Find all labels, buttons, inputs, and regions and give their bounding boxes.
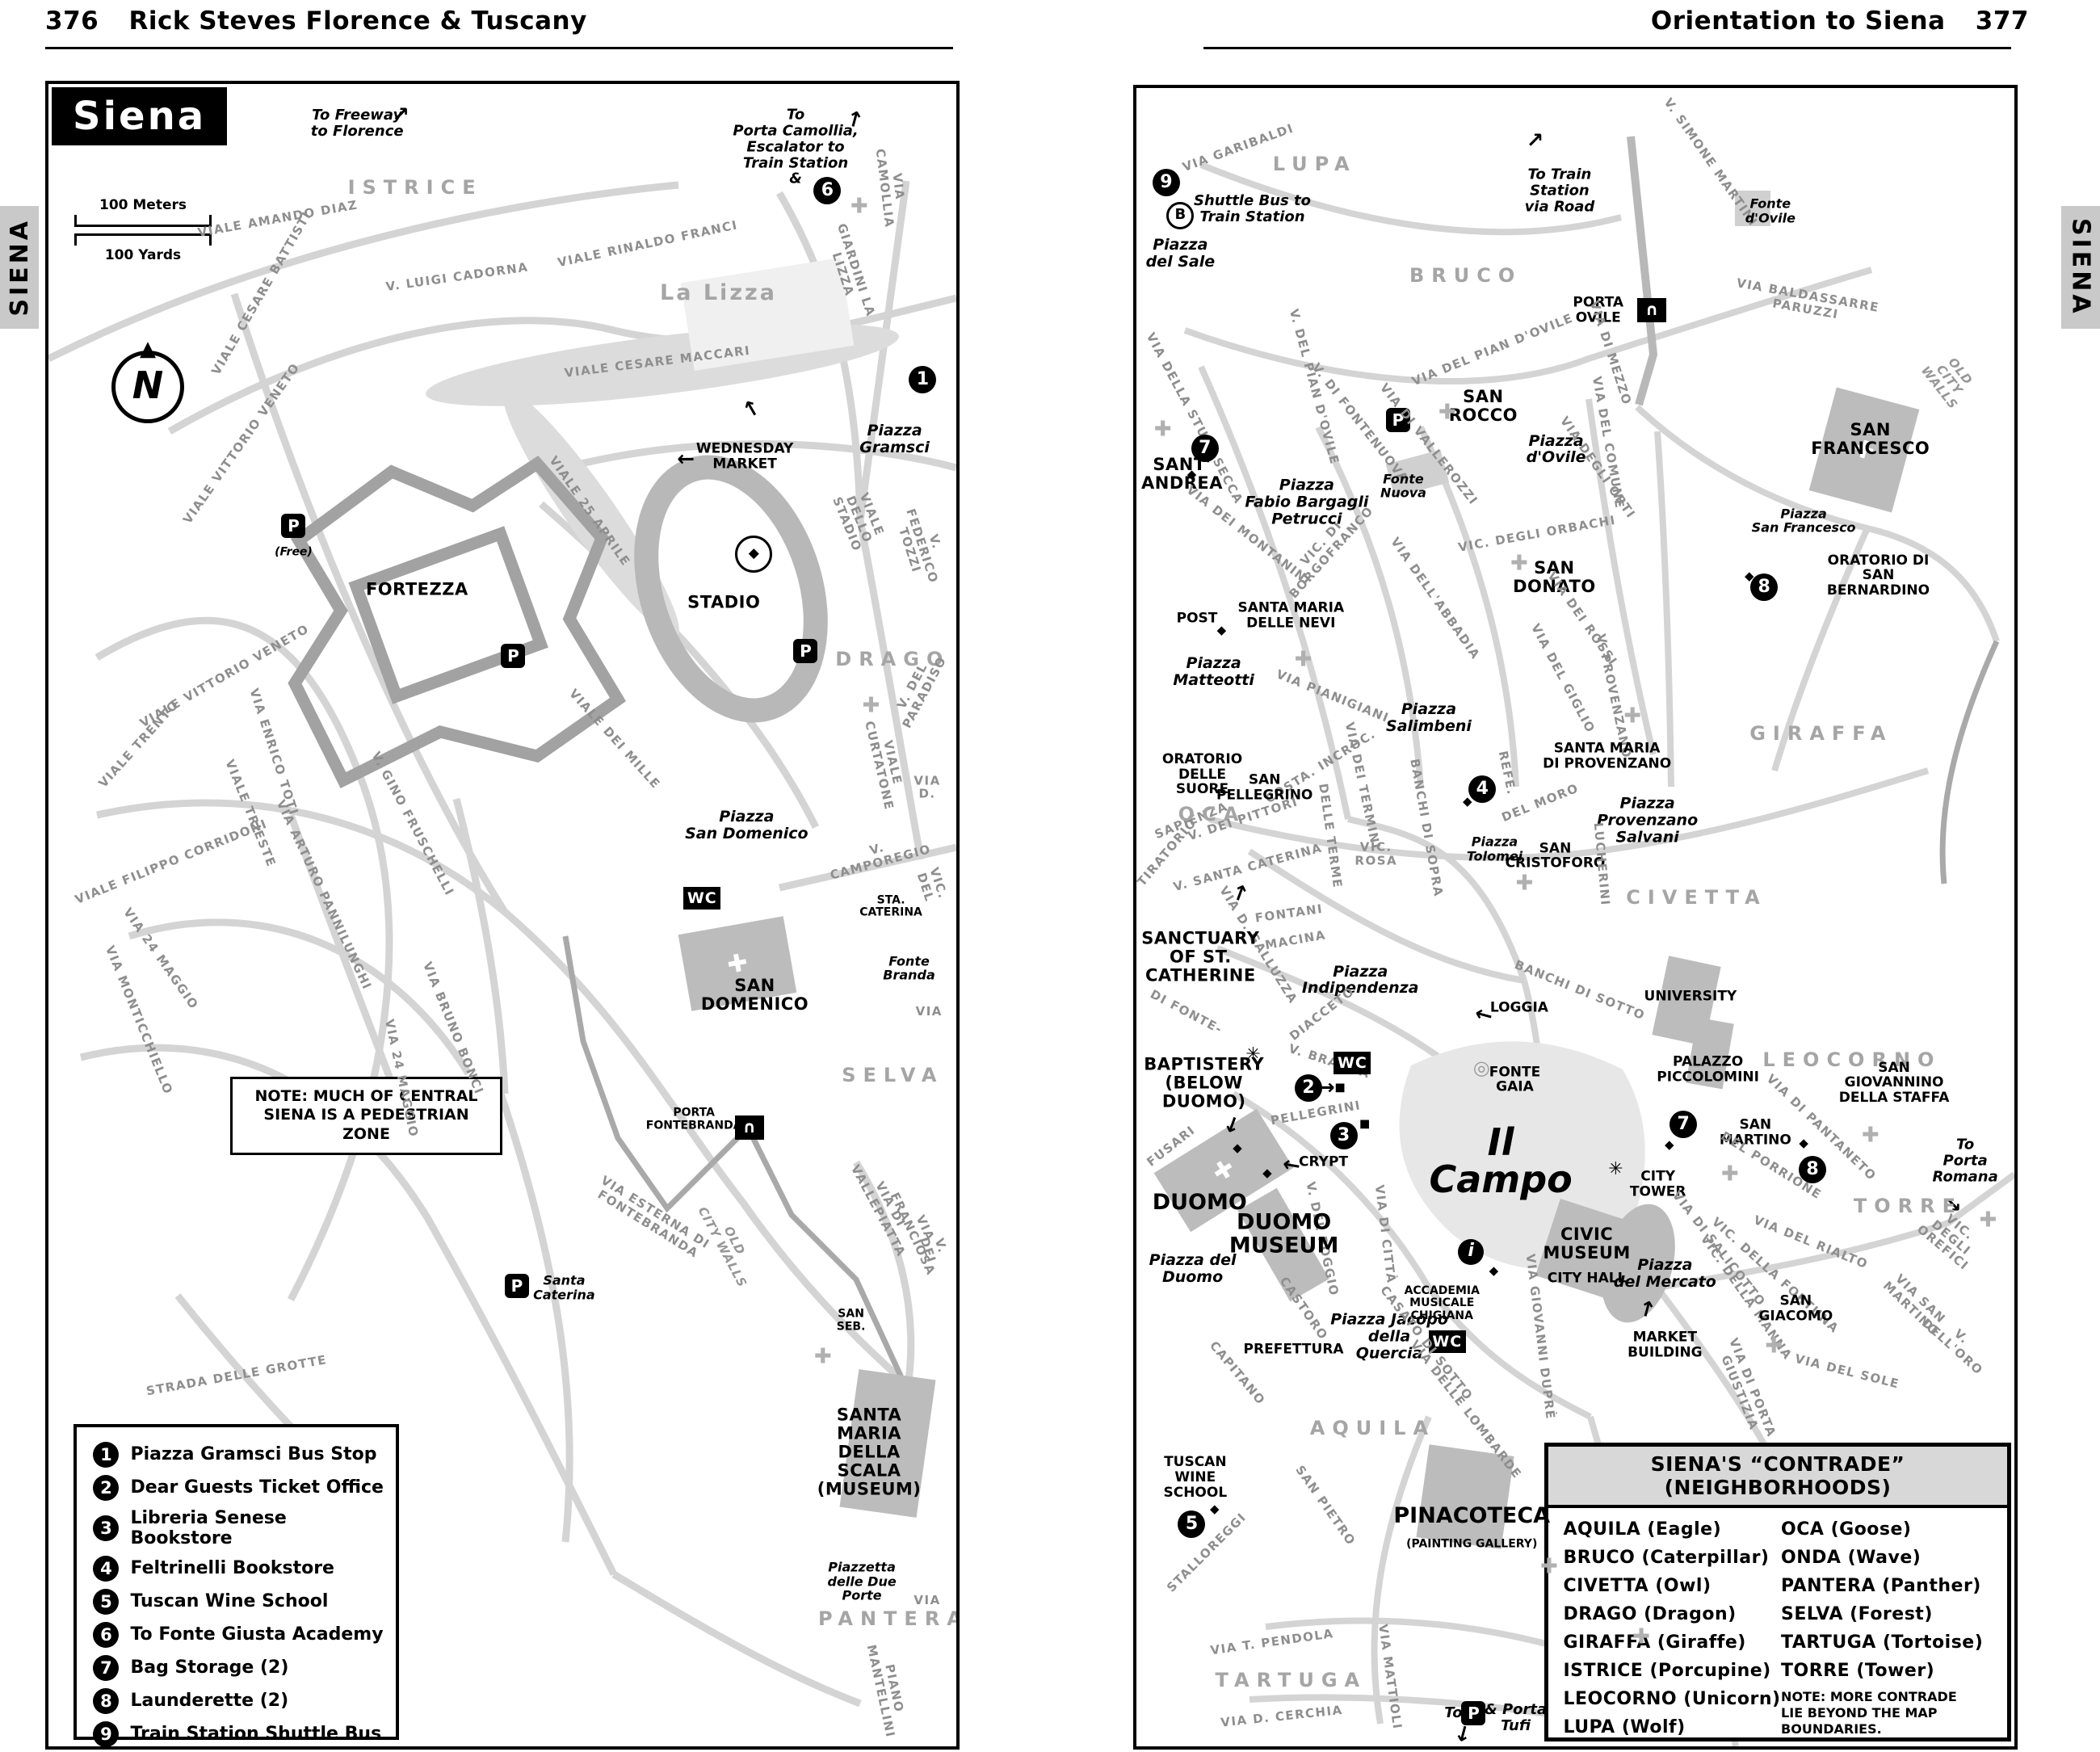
marker-3-libreria-senese: 3 <box>1330 1122 1358 1149</box>
porta-fontebranda-gate-icon: ∩ <box>735 1115 764 1140</box>
poi-diamond-icon: ◆ <box>1489 1264 1499 1278</box>
piazza-piazza-fabio-bargagli-petrucci: Piazza Fabio Bargagli Petrucci <box>1245 477 1368 528</box>
church-icon: ✚ <box>862 694 880 717</box>
contrada-bruco-caterpillar: BRUCO (Caterpillar) <box>1563 1548 1781 1568</box>
legend-label-dear-guests-ticket-office: Dear Guests Ticket Office <box>130 1477 383 1498</box>
marker-4-feltrinelli: 4 <box>1468 775 1496 803</box>
map-key-legend: 1Piazza Gramsci Bus Stop2Dear Guests Tic… <box>73 1424 398 1740</box>
place-xs-sta-caterina: STA. CATERINA <box>859 894 922 919</box>
place-xs-san-seb: SAN SEB. <box>837 1309 866 1334</box>
piazza-piazza-salimbeni: Piazza Salimbeni <box>1386 701 1472 735</box>
siena-center-map: ✚ ✚ SIENA'S “CONTRADE” (NEIGHBORHOODS) A… <box>1133 85 2018 1750</box>
poi-square-icon: ■ <box>1335 1082 1346 1094</box>
place-sm-oratorio-di-san-bernardino: ORATORIO DI SAN BERNARDINO <box>1810 553 1947 599</box>
dir-to-porta-romana: To Porta Romana <box>1933 1137 1998 1185</box>
book-spread: { "pages": { "left": { "page_number": "3… <box>0 0 2100 1752</box>
piazza-sm-piazza-san-francesco: Piazza San Francesco <box>1752 506 1856 535</box>
street-via-d: VIA D. <box>913 774 942 800</box>
legend-badge-9: 9 <box>93 1721 119 1747</box>
contrada-leocorno-unicorn: LEOCORNO (Unicorn) <box>1563 1689 1781 1709</box>
poi-square-icon: ■ <box>1359 1118 1370 1130</box>
marker-6-fonte-giusta: 6 <box>813 177 841 204</box>
contrade-column-right: OCA (Goose)ONDA (Wave)PANTERA (Panther)S… <box>1781 1519 1999 1746</box>
marker-7-bag-storage: 7 <box>1191 435 1219 462</box>
piazza-sm-piazza-tolomei: Piazza Tolomei <box>1467 835 1522 863</box>
legend-item-8: 8Launderette (2) <box>93 1688 392 1714</box>
market-arrow-icon: ← <box>677 448 695 472</box>
place-sm-tuscan-wine-school: TUSCAN WINE SCHOOL <box>1163 1455 1227 1500</box>
legend-item-7: 7Bag Storage (2) <box>93 1655 392 1681</box>
church-icon: ✚ <box>1623 705 1641 729</box>
place-san-rocco: SAN ROCCO <box>1449 388 1518 425</box>
street-via: VIA <box>916 1005 943 1019</box>
area-lupa: LUPA <box>1273 153 1357 174</box>
right-page-header: Orientation to Siena 377 <box>1651 6 2029 36</box>
church-icon: ✚ <box>1765 1335 1783 1359</box>
piazza-sm-fonte-nuova: Fonte Nuova <box>1380 472 1426 500</box>
place-lg-duomo-museum: DUOMO MUSEUM <box>1229 1210 1338 1258</box>
area-bruco: BRUCO <box>1409 265 1522 286</box>
dir-porta-tufi: & Porta Tufi <box>1485 1702 1547 1734</box>
legend-item-3: 3Libreria Senese Bookstore <box>93 1508 392 1548</box>
area-pantera: PANTERA <box>818 1607 960 1628</box>
legend-badge-2: 2 <box>93 1475 119 1501</box>
to-freeway-note: To Freeway to Florence <box>311 108 404 141</box>
contrade-column-left: AQUILA (Eagle)BRUCO (Caterpillar)CIVETTA… <box>1563 1519 1781 1746</box>
street-via: VIA <box>913 1594 940 1607</box>
parking-free-label: (Free) <box>275 547 313 559</box>
contrada-pantera-panther: PANTERA (Panther) <box>1781 1576 1999 1596</box>
place-santa-maria-della-scala-museum: SANTA MARIA DELLA SCALA (MUSEUM) <box>817 1405 922 1498</box>
place-xs-painting-gallery: (PAINTING GALLERY) <box>1406 1538 1537 1550</box>
left-page-number: 376 <box>45 6 99 36</box>
city-tower-icon: ✳ <box>1608 1159 1623 1179</box>
poi-diamond-icon: ◆ <box>1187 468 1197 481</box>
church-icon: ✚ <box>1979 1209 1997 1233</box>
marker-1-gramsci-bus: 1 <box>909 366 936 393</box>
legend-item-1: 1Piazza Gramsci Bus Stop <box>93 1442 392 1468</box>
church-icon: ✚ <box>814 1346 832 1369</box>
right-header-rule <box>1203 47 2011 49</box>
place-sm-san-giacomo: SAN GIACOMO <box>1758 1293 1833 1323</box>
dir-to-train-station-via-road: To Train Station via Road <box>1525 167 1595 215</box>
piazza-sm-fonte-d-ovile: Fonte d'Ovile <box>1745 196 1795 225</box>
parking-icon: P <box>793 639 817 663</box>
contrada-civetta-owl: CIVETTA (Owl) <box>1563 1576 1781 1596</box>
contrada-onda-wave: ONDA (Wave) <box>1781 1548 1999 1568</box>
church-icon: ✚ <box>1862 1124 1879 1148</box>
place-san-domenico: SAN DOMENICO <box>701 977 808 1014</box>
legend-label-launderette-2: Launderette (2) <box>130 1691 288 1711</box>
contrada-istrice-porcupine: ISTRICE (Porcupine) <box>1563 1661 1781 1681</box>
legend-label-piazza-gramsci-bus-stop: Piazza Gramsci Bus Stop <box>130 1444 376 1464</box>
dir-shuttle-bus-to-train-station: Shuttle Bus to Train Station <box>1194 193 1311 225</box>
scale-bar: 100 Meters 100 Yards <box>74 197 212 263</box>
to-porta-camollia-note: To Porta Camollia, Escalator to Train St… <box>733 107 858 187</box>
place-sm-loggia: LOGGIA <box>1490 1001 1548 1016</box>
pedestrian-zone-note: NOTE: MUCH OF CENTRAL SIENA IS A PEDESTR… <box>230 1077 502 1155</box>
contrada-lupa-wolf: LUPA (Wolf) <box>1563 1717 1781 1737</box>
left-siena-tab: SIENA <box>0 206 39 329</box>
legend-badge-3: 3 <box>93 1515 119 1541</box>
parking-icon: P <box>501 644 525 668</box>
poi-diamond-icon: ◆ <box>1463 795 1472 809</box>
bus-stop-icon: B <box>1166 202 1194 229</box>
place-sm-san-giovannino-della-staffa: SAN GIOVANNINO DELLA STAFFA <box>1834 1061 1955 1106</box>
church-icon: ✚ <box>1510 552 1528 576</box>
left-book-title: Rick Steves Florence & Tuscany <box>129 6 587 36</box>
legend-item-6: 6To Fonte Giusta Academy <box>93 1622 392 1648</box>
place-sm-prefettura: PREFETTURA <box>1244 1342 1344 1358</box>
place-fortezza: FORTEZZA <box>366 580 468 599</box>
piazza-piazza-provenzano-salvani: Piazza Provenzano Salvani <box>1597 796 1698 847</box>
scale-yards-bracket <box>74 233 212 246</box>
legend-label-libreria-senese-bookstore: Libreria Senese Bookstore <box>130 1508 392 1548</box>
contrada-selva-forest: SELVA (Forest) <box>1781 1604 1999 1624</box>
legend-badge-1: 1 <box>93 1442 119 1468</box>
place-stadio: STADIO <box>687 594 760 612</box>
scale-meters-label: 100 Meters <box>74 197 212 213</box>
left-page-header: 376 Rick Steves Florence & Tuscany <box>45 6 587 36</box>
left-siena-tab-label: SIENA <box>6 218 34 317</box>
contrada-tartuga-tortoise: TARTUGA (Tortoise) <box>1781 1632 1999 1653</box>
place-sanctuary-of-st-catherine: SANCTUARY OF ST. CATHERINE <box>1141 929 1259 985</box>
poi-diamond-icon: ◆ <box>1233 1141 1242 1155</box>
place-sm-fonte-gaia: FONTE GAIA <box>1489 1065 1541 1094</box>
contrada-oca-goose: OCA (Goose) <box>1781 1519 1999 1540</box>
campo-il-campo: Il Campo <box>1429 1124 1572 1198</box>
legend-label-feltrinelli-bookstore: Feltrinelli Bookstore <box>130 1558 334 1578</box>
contrada-drago-dragon: DRAGO (Dragon) <box>1563 1604 1781 1624</box>
soccer-ball-icon: ◆ <box>735 536 772 573</box>
right-siena-tab-label: SIENA <box>2067 218 2095 317</box>
church-icon: ✚ <box>1540 1556 1558 1579</box>
area-tartuga: TARTUGA <box>1215 1670 1367 1691</box>
legend-badge-8: 8 <box>93 1688 119 1714</box>
place-sm-santa-maria-delle-nevi: SANTA MARIA DELLE NEVI <box>1237 600 1344 630</box>
poi-diamond-icon: ◆ <box>1799 1136 1808 1149</box>
marker-7b-bag-storage: 7 <box>1669 1111 1697 1138</box>
left-header-rule <box>45 47 953 49</box>
legend-badge-4: 4 <box>93 1556 119 1582</box>
place-sm-santa-maria-di-provenzano: SANTA MARIA DI PROVENZANO <box>1543 742 1671 771</box>
freeway-arrow-icon: ↗ <box>392 104 409 128</box>
legend-item-9: 9Train Station Shuttle Bus <box>93 1721 392 1747</box>
compass-letter: N <box>115 355 180 416</box>
piazza-piazza-gramsci: Piazza Gramsci <box>859 423 930 457</box>
poi-diamond-icon: ◆ <box>1210 1502 1220 1516</box>
church-icon: ✚ <box>1721 1162 1739 1186</box>
scale-meters-bracket <box>74 215 212 227</box>
legend-label-bag-storage-2: Bag Storage (2) <box>130 1657 288 1678</box>
legend-label-tuscan-wine-school: Tuscan Wine School <box>130 1591 328 1611</box>
fonte-gaia-icon: ◎ <box>1473 1057 1490 1078</box>
poi-diamond-icon: ◆ <box>1262 1166 1272 1179</box>
contrade-legend: SIENA'S “CONTRADE” (NEIGHBORHOODS) AQUIL… <box>1544 1443 2010 1741</box>
marker-5-wine-school: 5 <box>1178 1510 1205 1538</box>
right-page-number: 377 <box>1976 6 2029 36</box>
church-icon: ✚ <box>1295 649 1312 672</box>
piazza-piazza-del-mercato: Piazza del Mercato <box>1614 1257 1716 1291</box>
area-selva: SELVA <box>842 1064 943 1085</box>
map-title: Siena <box>52 87 227 145</box>
church-icon: ✚ <box>1438 401 1456 425</box>
place-baptistery-below-duomo: BAPTISTERY (BELOW DUOMO) <box>1144 1055 1264 1111</box>
contrada-giraffa-giraffe: GIRAFFA (Giraffe) <box>1563 1632 1781 1653</box>
church-icon: ✚ <box>1154 418 1172 442</box>
piazza-sm-santa-caterina: Santa Caterina <box>533 1273 595 1301</box>
porta-ovile-gate-icon: ∩ <box>1637 298 1666 322</box>
poi-diamond-icon: ◆ <box>1665 1138 1674 1152</box>
place-sm-market-building: MARKET BUILDING <box>1627 1330 1703 1359</box>
compass-needle: ▲ <box>140 337 156 361</box>
piazza-piazza-san-domenico: Piazza San Domenico <box>685 809 808 842</box>
church-icon: ✚ <box>1632 1625 1650 1649</box>
legend-item-2: 2Dear Guests Ticket Office <box>93 1475 392 1501</box>
place-sm-palazzo-piccolomini: PALAZZO PICCOLOMINI <box>1657 1055 1759 1085</box>
place-sm-university: UNIVERSITY <box>1644 989 1737 1005</box>
piazza-sm-piazzetta-delle-due-porte: Piazzetta delle Due Porte <box>815 1561 909 1603</box>
street-vic-rosa: VIC. ROSA <box>1354 841 1397 868</box>
legend-badge-5: 5 <box>93 1589 119 1615</box>
contrade-legend-title: SIENA'S “CONTRADE” (NEIGHBORHOODS) <box>1548 1447 2006 1508</box>
tourist-info-icon: i <box>1458 1239 1484 1265</box>
contrada-torre-tower: TORRE (Tower) <box>1781 1661 1999 1681</box>
area-aquila: AQUILA <box>1310 1418 1435 1439</box>
marker-9-shuttle-bus: 9 <box>1153 169 1180 196</box>
piazza-piazza-indipendenza: Piazza Indipendenza <box>1302 964 1419 998</box>
train-station-arrow-icon: ↗ <box>1527 129 1544 153</box>
parking-free-icon: P <box>281 514 305 538</box>
siena-overview-map: ✚ Siena 100 Meters 100 Yards ▲ N NOTE: M… <box>45 81 960 1750</box>
marker-2-arrow-icon: → <box>1317 1077 1335 1100</box>
church-icon: ✚ <box>1516 872 1534 896</box>
post-diamond-icon: ◆ <box>1217 624 1227 637</box>
contrade-note: NOTE: MORE CONTRADE LIE BEYOND THE MAP B… <box>1781 1689 1981 1737</box>
wc-icon: WC <box>1333 1052 1371 1074</box>
contrada-aquila-eagle: AQUILA (Eagle) <box>1563 1519 1781 1540</box>
legend-badge-7: 7 <box>93 1655 119 1681</box>
piazza-piazza-del-duomo: Piazza del Duomo <box>1149 1252 1237 1286</box>
wc-icon: WC <box>683 887 720 910</box>
piazza-piazza-matteotti: Piazza Matteotti <box>1173 655 1254 689</box>
piazza-sm-fonte-branda: Fonte Branda <box>883 954 935 982</box>
right-siena-tab: SIENA <box>2061 206 2100 329</box>
place-san-francesco: SAN FRANCESCO <box>1811 421 1930 458</box>
place-lg-pinacoteca: PINACOTECA <box>1393 1504 1550 1528</box>
area-civetta: CIVETTA <box>1626 887 1767 908</box>
north-compass-icon: ▲ N <box>111 351 184 423</box>
area-istrice: ISTRICE <box>348 176 483 197</box>
parking-santa-caterina-icon: P <box>505 1274 529 1298</box>
legend-badge-6: 6 <box>93 1622 119 1648</box>
parking-tufi-icon: P <box>1461 1701 1485 1725</box>
poi-diamond-icon: ◆ <box>1745 569 1754 582</box>
right-chapter-title: Orientation to Siena <box>1651 6 1946 36</box>
area-giraffa: GIRAFFA <box>1749 722 1892 743</box>
dir-to: To <box>1444 1705 1462 1721</box>
place-sm-crypt: CRYPT <box>1299 1155 1348 1170</box>
place-xs-porta-fontebranda: PORTA FONTEBRANDA <box>646 1107 742 1132</box>
legend-label-train-station-shuttle-bus: Train Station Shuttle Bus <box>130 1724 381 1744</box>
legend-item-4: 4Feltrinelli Bookstore <box>93 1556 392 1582</box>
legend-label-to-fonte-giusta-academy: To Fonte Giusta Academy <box>130 1624 383 1645</box>
piazza-piazza-del-sale: Piazza del Sale <box>1146 237 1216 271</box>
place-sm-san-pellegrino: SAN PELLEGRINO <box>1216 773 1312 803</box>
scale-yards-label: 100 Yards <box>74 247 212 263</box>
place-sm-post: POST <box>1177 611 1218 627</box>
place-sm-wednesday-market: WEDNESDAY MARKET <box>696 441 794 471</box>
church-icon: ✚ <box>850 195 868 219</box>
legend-item-5: 5Tuscan Wine School <box>93 1589 392 1615</box>
area-mc-la-lizza: La Lizza <box>660 281 777 305</box>
marker-8-launderette: 8 <box>1750 573 1778 601</box>
